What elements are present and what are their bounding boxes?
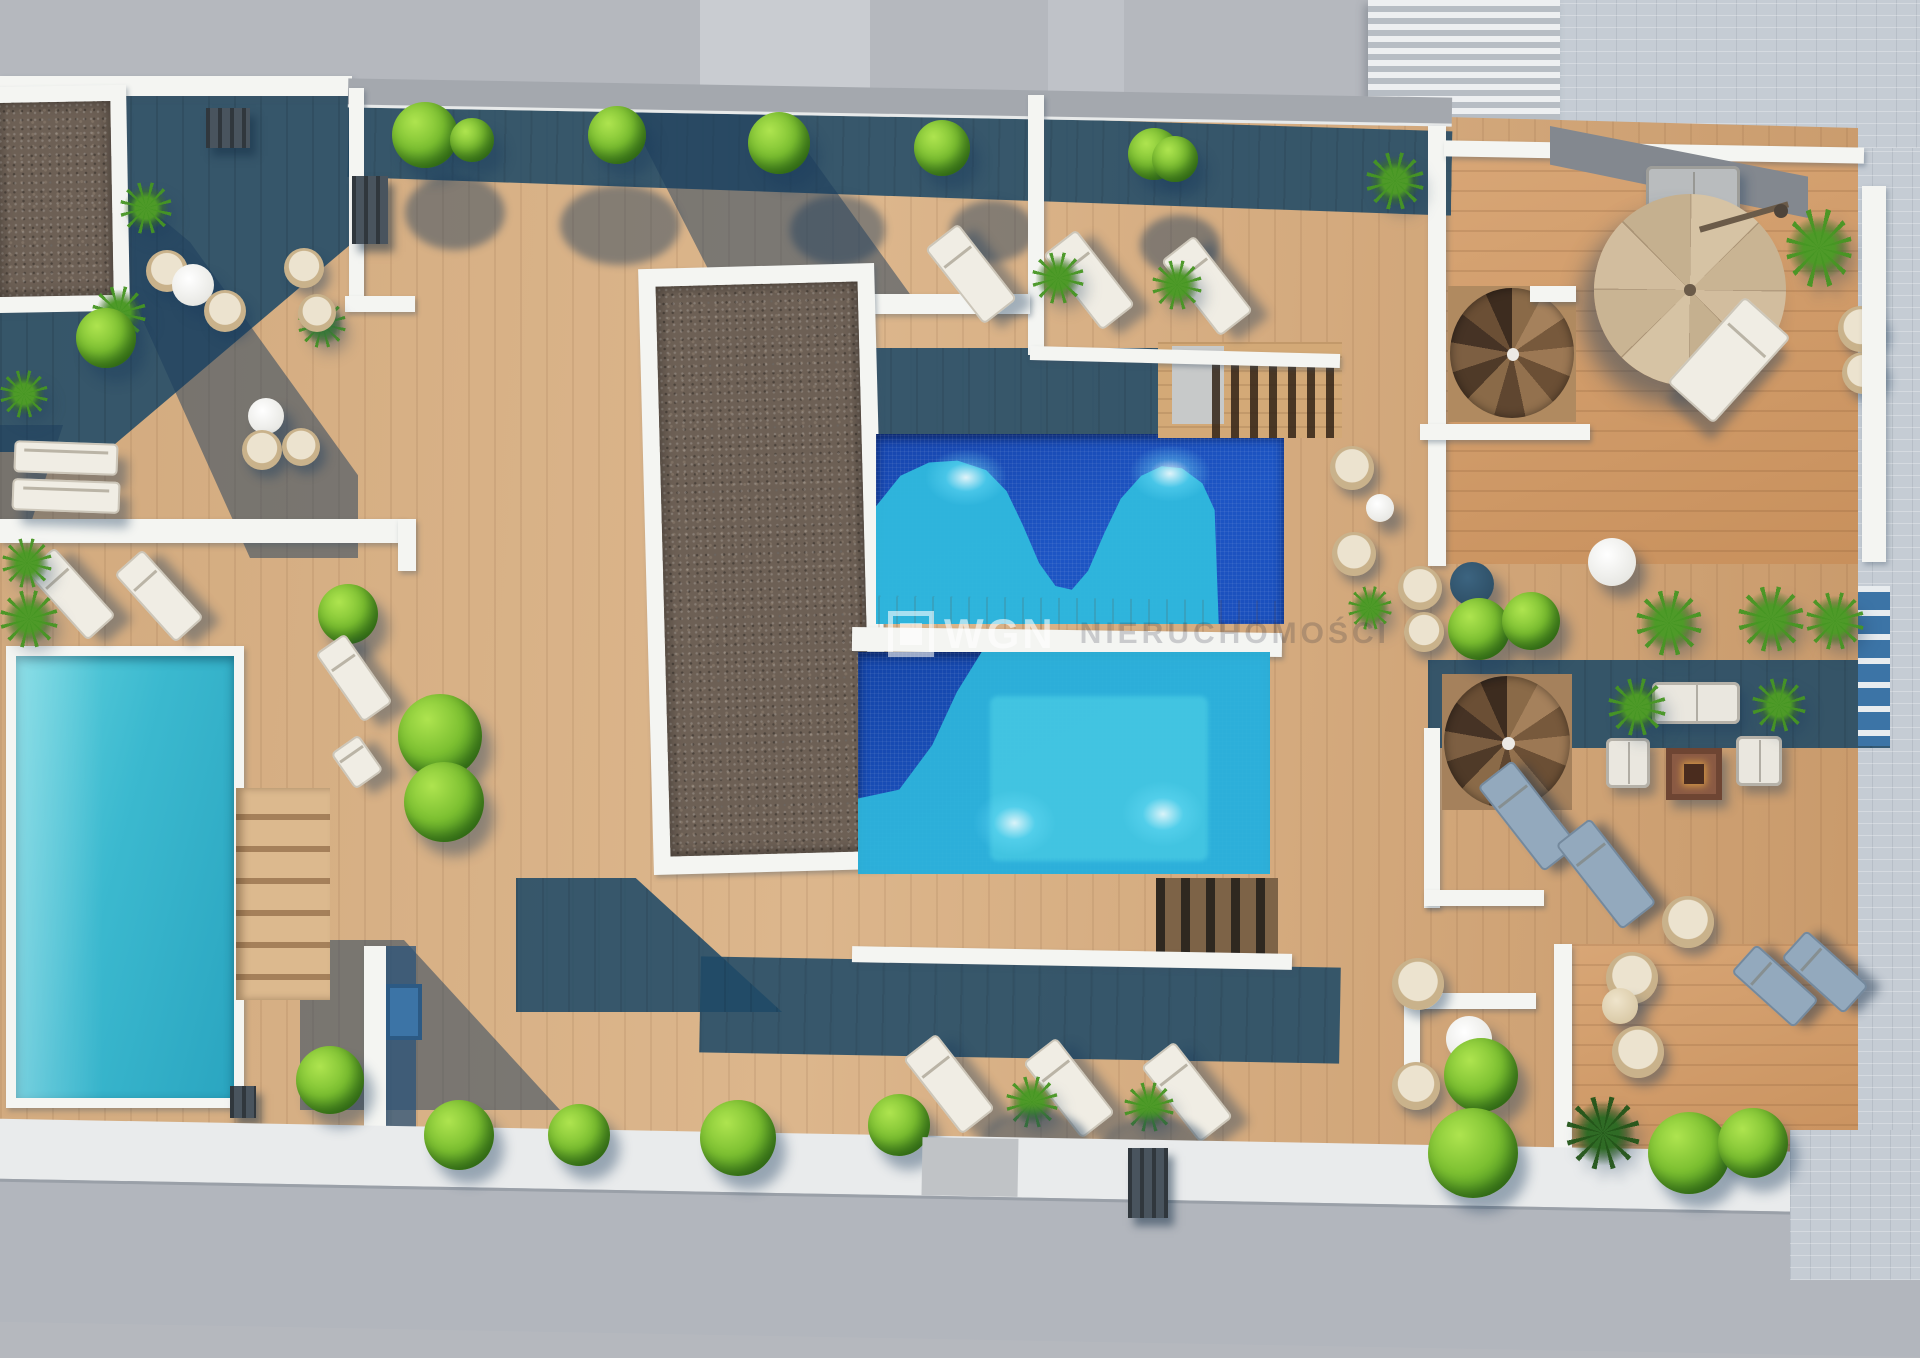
wall-mid-left-corner	[398, 519, 416, 571]
palm-plant-dark	[1566, 1096, 1640, 1170]
wall-bottom-center-shadow-side	[386, 946, 416, 1150]
bush	[1502, 592, 1560, 650]
wall-right-rooms-vertical	[1428, 126, 1446, 566]
fire-pit-armchair	[1606, 738, 1650, 788]
palm-plant	[1636, 590, 1702, 656]
hanging-wicker-chair	[298, 294, 336, 332]
palm-plant	[1152, 260, 1202, 310]
pool-light-glow	[1122, 781, 1204, 848]
left-pool-shallow-band	[16, 656, 103, 1098]
pool-bottom-steps	[1156, 878, 1278, 958]
watermark-suffix: NIERUCHOMOŚCI	[1080, 619, 1390, 649]
fire-pit-table	[1666, 748, 1722, 800]
ac-unit-blue	[386, 984, 422, 1040]
street-top-light-strip	[700, 0, 870, 90]
bush-shadow	[560, 185, 680, 265]
hanging-wicker-chair	[1332, 532, 1376, 576]
sun-lounger	[13, 440, 118, 476]
concrete-pad	[922, 1137, 1019, 1197]
watermark: WGN NIERUCHOMOŚCI	[888, 612, 1390, 656]
bush	[1448, 598, 1510, 660]
gravel-surface	[0, 101, 114, 297]
pavement-bottom-right	[1790, 1130, 1920, 1280]
waste-bin	[1128, 1148, 1168, 1218]
hanging-wicker-chair	[1398, 566, 1442, 610]
hanging-wicker-chair	[1612, 1026, 1664, 1078]
fire-pit-armchair	[1736, 736, 1782, 786]
bush	[1444, 1038, 1518, 1112]
barbecue-grill	[230, 1086, 256, 1118]
rooftop-render: { "scene": { "kind": "aerial 3d architec…	[0, 0, 1920, 1280]
hanging-wicker-chair	[1330, 446, 1374, 490]
pool-light-glow	[925, 449, 1007, 506]
palm-plant	[0, 590, 58, 648]
shadow-below-pools	[699, 956, 1341, 1063]
bush	[76, 308, 136, 368]
spiral-staircase-upper	[1450, 288, 1574, 418]
exterior-ladder-blue	[1858, 586, 1890, 746]
wall-bottom-center	[364, 946, 386, 1150]
bush	[1428, 1108, 1518, 1198]
hanging-wicker-chair	[1662, 896, 1714, 948]
wgn-square-logo-icon	[888, 611, 934, 657]
hanging-wicker-chair	[282, 428, 320, 466]
bush	[392, 102, 458, 168]
round-table	[248, 398, 284, 434]
bench	[206, 108, 250, 148]
bush	[868, 1094, 930, 1156]
hanging-wicker-chair	[1404, 612, 1444, 652]
palm-plant	[1032, 252, 1084, 304]
wall-stub-left	[345, 296, 415, 312]
bush	[748, 112, 810, 174]
wall-spiral2-bottom	[1424, 890, 1544, 906]
sun-lounger	[11, 478, 120, 514]
hanging-wicker-chair	[204, 290, 246, 332]
wall-spiral2-left	[1424, 728, 1440, 908]
wall-right-edge-white	[1862, 186, 1886, 562]
bush	[1718, 1108, 1788, 1178]
palm-plant	[1608, 678, 1666, 736]
left-pool-water	[16, 656, 234, 1098]
left-pool-rim	[6, 646, 244, 1108]
bush	[548, 1104, 610, 1166]
bush-shadow	[405, 175, 505, 250]
palm-plant	[1738, 586, 1804, 652]
hanging-wicker-chair	[242, 430, 282, 470]
palm-plant	[1806, 592, 1864, 650]
bush	[296, 1046, 364, 1114]
palm-plant	[1786, 208, 1852, 288]
bush-shadow	[790, 195, 885, 265]
bush	[318, 584, 378, 644]
umbrella-anchor	[1774, 204, 1788, 218]
pool-light-glow	[973, 790, 1055, 857]
bush	[1648, 1112, 1730, 1194]
palm-plant	[0, 370, 48, 418]
hanging-wicker-chair	[1392, 1062, 1440, 1110]
left-deck-stairs	[236, 788, 330, 1000]
watermark-text: WGN	[944, 613, 1056, 655]
palm-plant	[1752, 678, 1806, 732]
gravel-roof-top-left	[0, 85, 130, 314]
round-table	[1366, 494, 1394, 522]
pool-light-glow	[1129, 445, 1211, 502]
bush	[588, 106, 646, 164]
gravel-surface	[656, 281, 873, 856]
gravel-roof-center	[638, 263, 890, 875]
bush	[404, 762, 484, 842]
hanging-wicker-chair	[284, 248, 324, 288]
bush	[450, 118, 494, 162]
palm-plant	[2, 538, 52, 588]
bush	[424, 1100, 494, 1170]
spiral-stair-upper-wall	[1530, 286, 1576, 302]
pool-top-pergola-slats	[1212, 358, 1338, 438]
storage-box	[352, 176, 388, 244]
parapet-mid-left	[0, 519, 404, 543]
lower-pool	[858, 652, 1270, 874]
street-top-light-strip-2	[1048, 0, 1124, 92]
wall-under-spiral-room	[1420, 424, 1590, 440]
bush	[914, 120, 970, 176]
bush	[1152, 136, 1198, 182]
round-table-beige	[1602, 988, 1638, 1024]
hanging-wicker-chair	[1392, 958, 1444, 1010]
palm-plant	[120, 182, 172, 234]
wall-center-right	[1028, 95, 1044, 355]
palm-plant	[1366, 152, 1424, 210]
round-table	[1588, 538, 1636, 586]
bush	[700, 1100, 776, 1176]
